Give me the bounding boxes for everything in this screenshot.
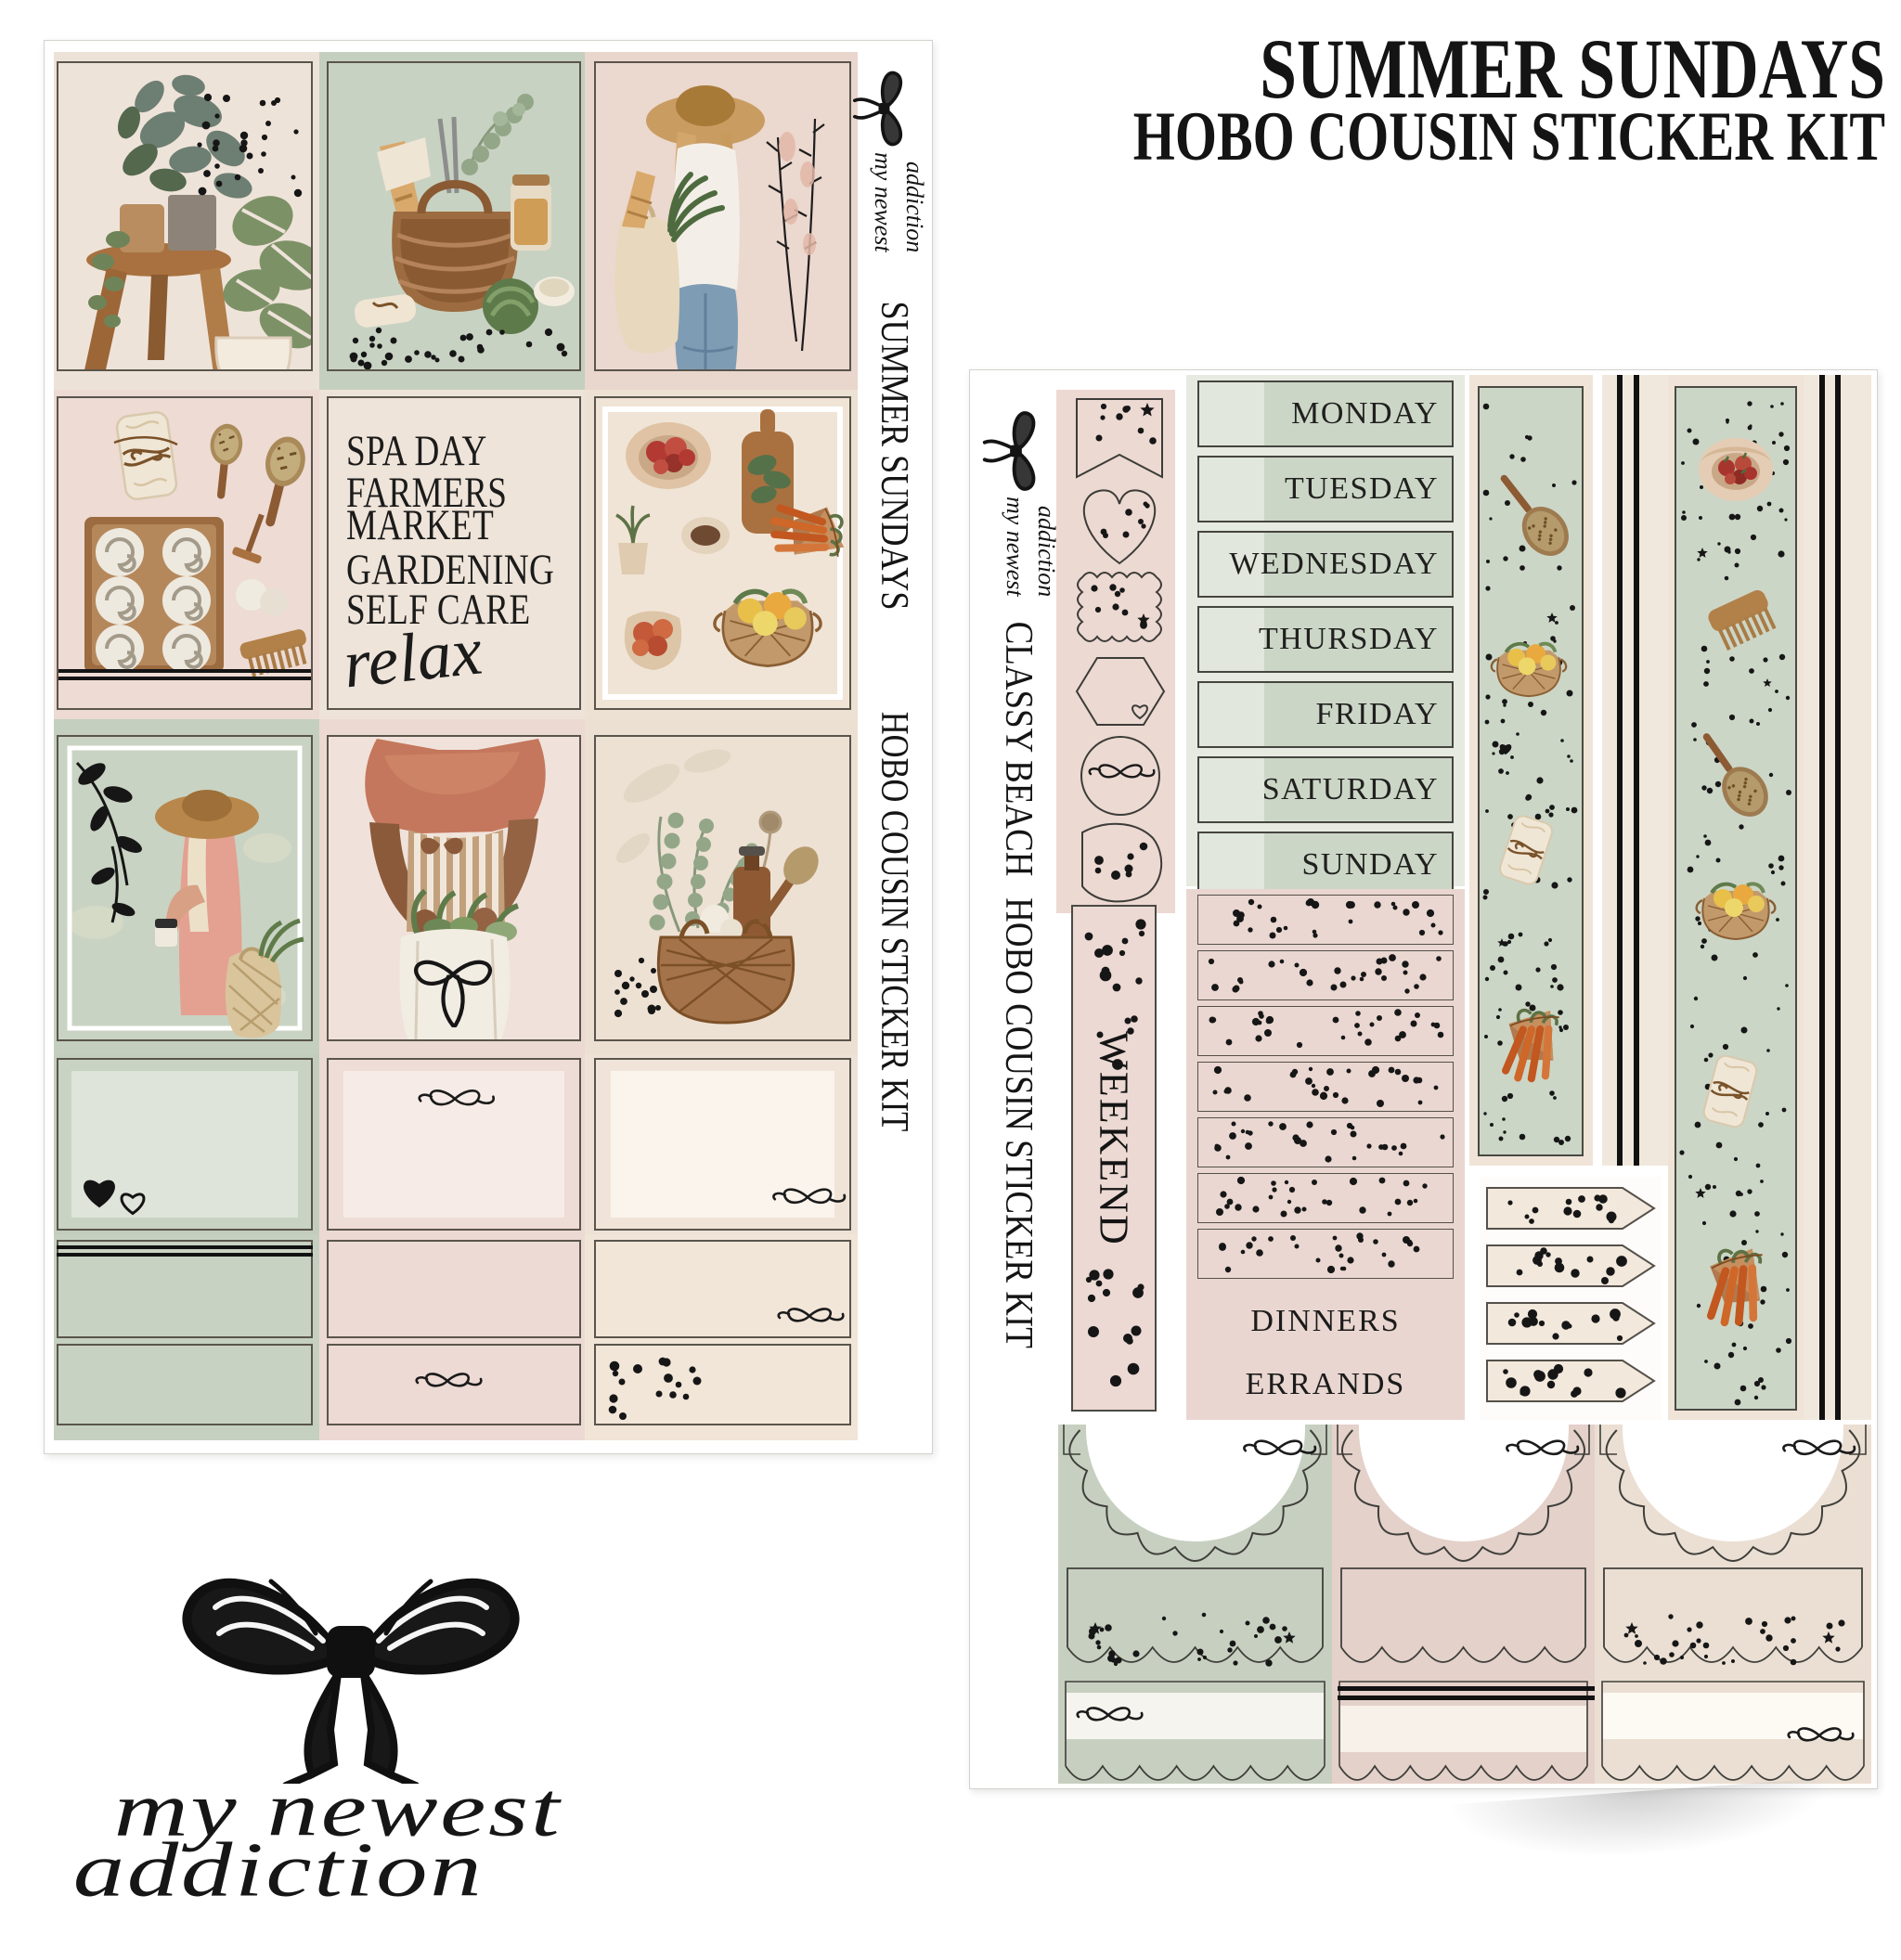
svg-text:my newest: my newest (1002, 496, 1028, 597)
svg-text:addiction: addiction (901, 161, 925, 252)
svg-text:addiction: addiction (1033, 506, 1057, 597)
svg-text:my newest: my newest (870, 152, 897, 252)
